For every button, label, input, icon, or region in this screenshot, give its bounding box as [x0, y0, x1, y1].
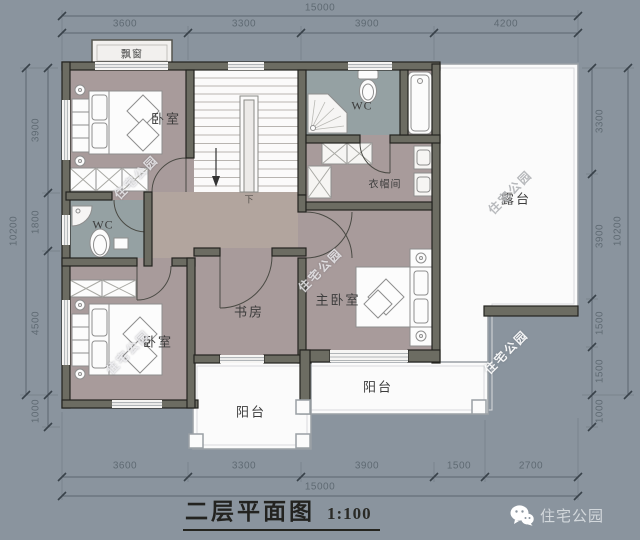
label-bay-window: 飘窗 [121, 46, 143, 61]
label-cloakroom: 衣帽间 [369, 176, 402, 191]
dim-top-seg-3: 3900 [355, 19, 379, 30]
caption-scale: 1:100 [327, 504, 372, 524]
dim-bottom-seg-3: 3900 [355, 461, 379, 472]
dim-bottom-seg-4: 1500 [447, 461, 471, 472]
dim-left-seg-3: 4500 [31, 311, 42, 335]
dim-bottom-seg-5: 2700 [519, 461, 543, 472]
label-study: 书房 [234, 302, 264, 321]
dim-bottom-seg-1: 3600 [113, 461, 137, 472]
dim-right-seg-4: 1500 [595, 359, 606, 383]
dim-top-total: 15000 [305, 3, 335, 14]
dim-left-seg-4: 1000 [31, 399, 42, 423]
dim-top-seg-4: 4200 [494, 19, 518, 30]
label-master-bedroom: 主卧室 [315, 290, 360, 309]
dim-bottom-total: 15000 [305, 482, 335, 493]
dim-right-seg-3: 1500 [595, 311, 606, 335]
dim-right-seg-1: 3300 [595, 109, 606, 133]
dim-left-seg-2: 1800 [31, 210, 42, 234]
label-wc-left: WC [92, 218, 113, 233]
label-bedroom-top: 卧室 [151, 109, 181, 128]
dim-left-total: 10200 [9, 216, 20, 246]
label-balcony-small: 阳台 [236, 402, 266, 421]
dim-top-seg-1: 3600 [113, 19, 137, 30]
brand-logo: 住宅公园 [510, 505, 604, 526]
caption-title: 二层平面图 [185, 492, 315, 526]
label-balcony-wide: 阳台 [363, 377, 393, 396]
dim-left-seg-1: 3900 [31, 118, 42, 142]
dim-bottom-seg-2: 3300 [232, 461, 256, 472]
dim-top-seg-2: 3300 [232, 19, 256, 30]
dim-right-seg-2: 3900 [595, 224, 606, 248]
label-stair-down: 下 [244, 193, 253, 206]
dim-right-seg-5: 1000 [595, 399, 606, 423]
wechat-icon [510, 505, 534, 526]
floorplan-page: 15000 3600 3300 3900 4200 3600 3300 3900… [0, 0, 640, 540]
caption: 二层平面图 1:100 [183, 492, 380, 531]
dim-right-total: 10200 [613, 216, 624, 246]
brand-logo-text: 住宅公园 [540, 505, 604, 526]
label-wc-top: WC [351, 99, 372, 114]
